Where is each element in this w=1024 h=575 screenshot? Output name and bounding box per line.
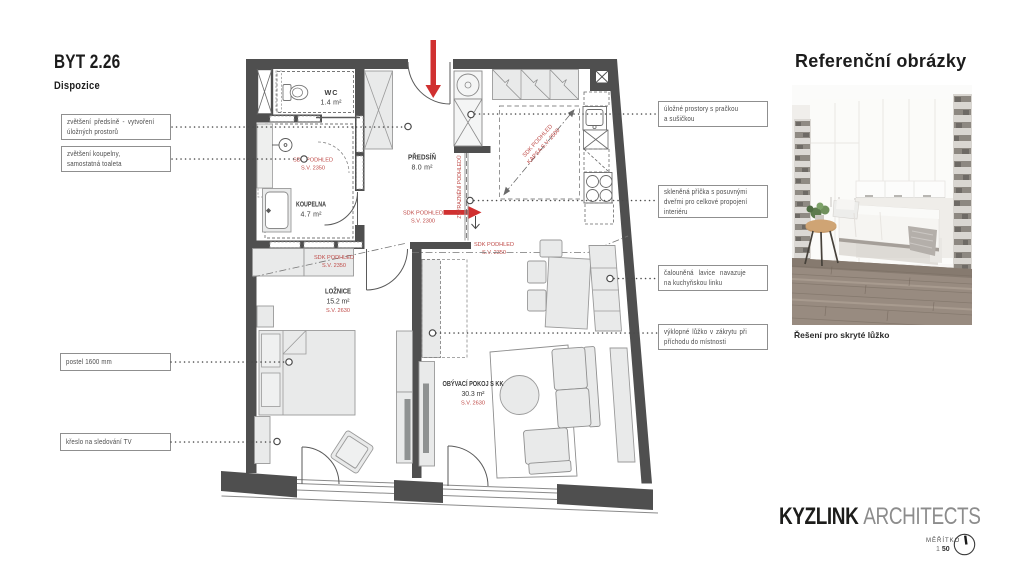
svg-text:SDK PODHLED: SDK PODHLED [293,158,333,164]
svg-text:S.V. 2350: S.V. 2350 [301,166,325,172]
svg-text:SDK PODHLED: SDK PODHLED [403,211,443,217]
svg-text:1.4 m²: 1.4 m² [321,100,343,107]
svg-text:S.V. 2350: S.V. 2350 [322,263,346,269]
svg-text:S.V. 2630: S.V. 2630 [461,401,485,407]
svg-text:SDK PODHLED: SDK PODHLED [474,242,514,248]
svg-text:SDK PODHLED: SDK PODHLED [314,255,354,261]
svg-text:S.V. 2630: S.V. 2630 [326,308,350,314]
svg-text:LOŽNICE: LOŽNICE [325,287,351,296]
svg-text:8.0 m²: 8.0 m² [412,165,434,172]
svg-text:WC: WC [325,88,338,97]
svg-text:PŘEDSÍŇ: PŘEDSÍŇ [408,153,436,162]
svg-text:4.7 m²: 4.7 m² [301,212,323,219]
svg-text:OBÝVACÍ POKOJ S KK: OBÝVACÍ POKOJ S KK [443,379,505,388]
svg-text:30.3 m²: 30.3 m² [462,391,486,398]
svg-text:S.V. 2300: S.V. 2300 [411,219,435,225]
svg-text:KOUPELNA: KOUPELNA [296,200,326,209]
svg-text:15.2 m²: 15.2 m² [327,299,351,306]
svg-text:ZVÝRAZNĚNÍ PODHLEDŮ: ZVÝRAZNĚNÍ PODHLEDŮ [455,155,463,218]
svg-text:S.V. 2350: S.V. 2350 [482,250,506,256]
